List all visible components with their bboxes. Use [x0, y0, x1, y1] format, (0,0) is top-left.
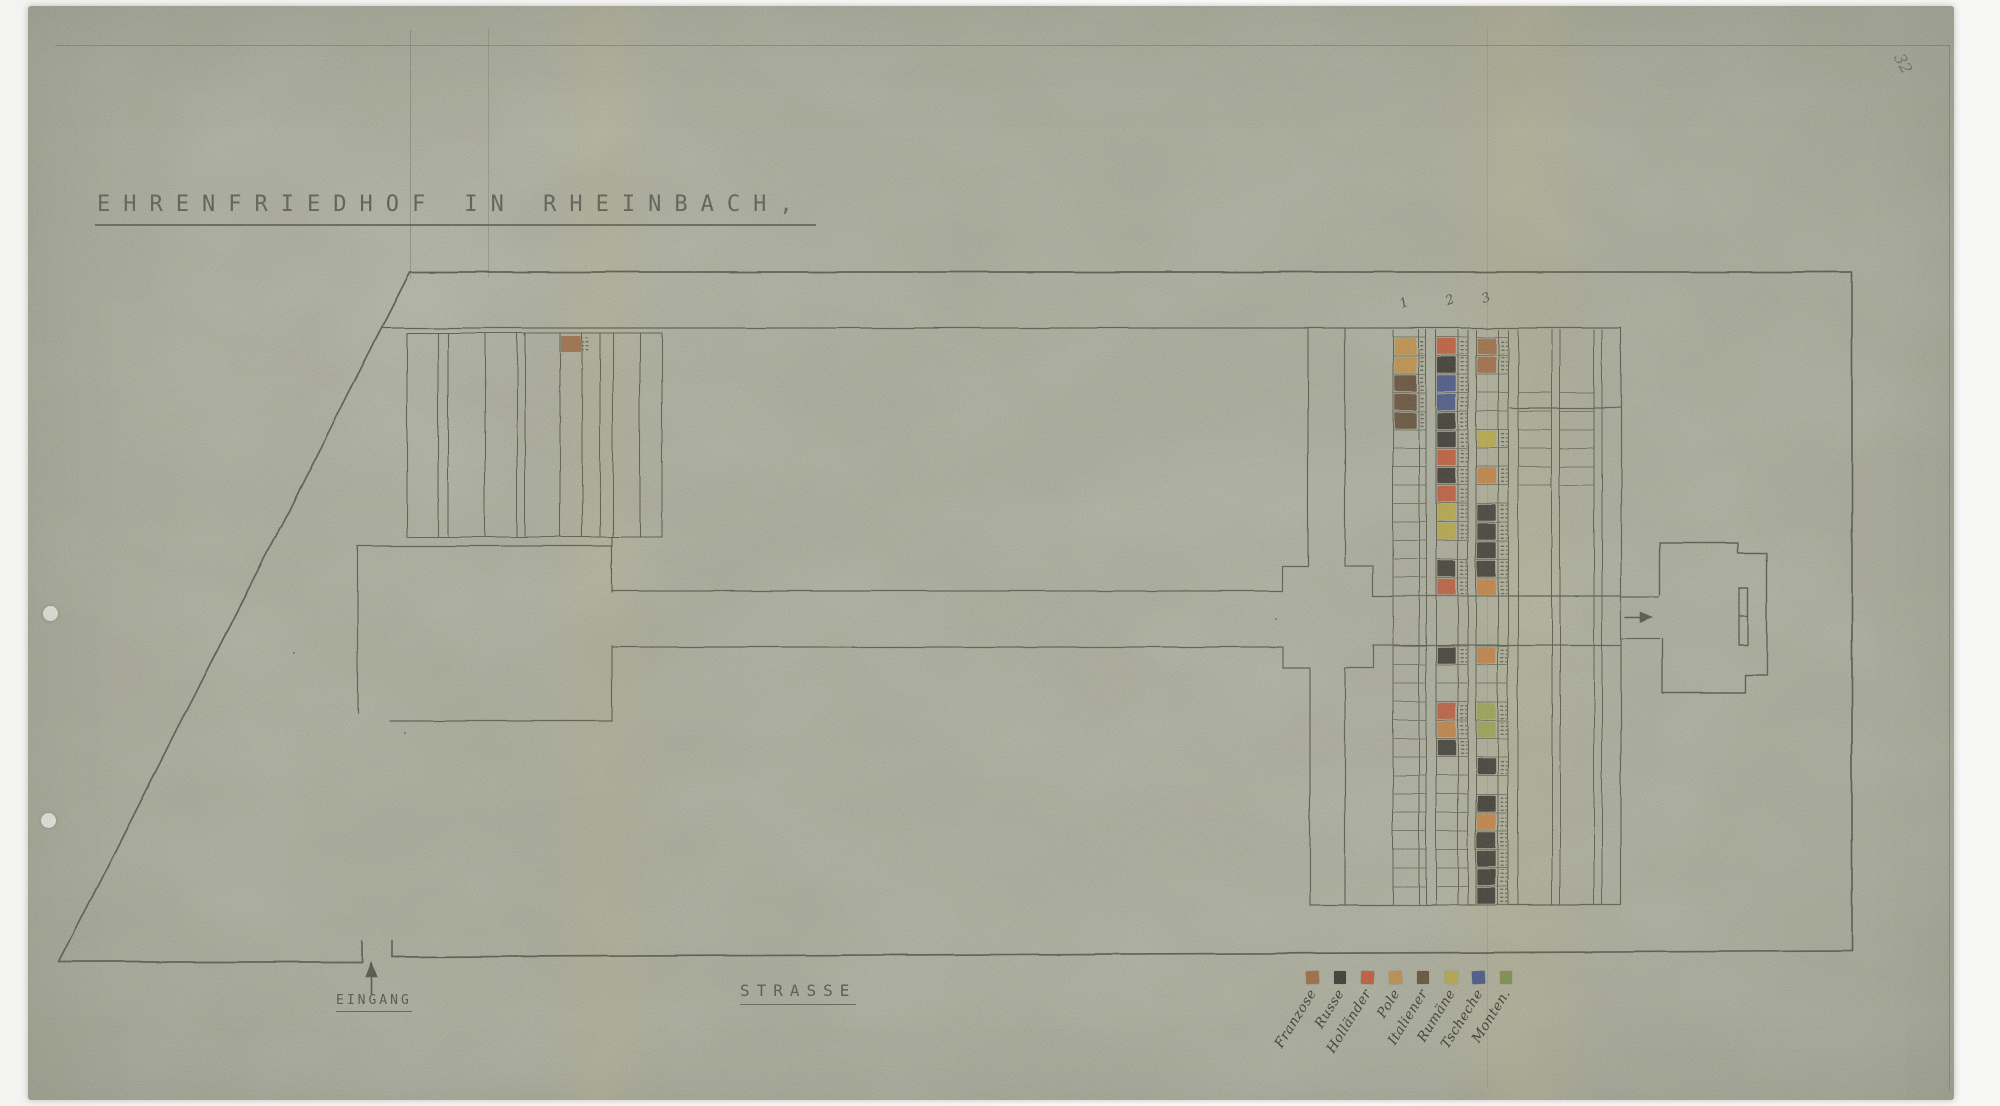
punch-hole: [43, 606, 58, 621]
paper-aging-band: [1433, 6, 1603, 1100]
paper-speck: [293, 652, 295, 654]
drawing-title: EHRENFRIEDHOF IN RHEINBACH,: [95, 192, 816, 226]
legend-swatch-rumaene: [1444, 971, 1457, 984]
paper-sheet: [28, 6, 1954, 1100]
street-label: STRASSE: [740, 981, 856, 1005]
legend-swatch-russe: [1334, 971, 1347, 984]
paper-crease: [1487, 28, 1488, 1088]
paper-speck: [1275, 618, 1277, 620]
scan-background: EHRENFRIEDHOF IN RHEINBACH, EINGANG STRA…: [0, 0, 2000, 1106]
paper-crease: [410, 30, 411, 278]
legend-swatch-hollaender: [1361, 971, 1374, 984]
paper-crease: [488, 28, 489, 278]
legend-swatch-franzose: [1306, 971, 1319, 984]
sheet-border-right: [1949, 45, 1950, 1091]
entrance-label: EINGANG: [336, 993, 412, 1012]
paper-aging-band: [545, 6, 665, 1100]
legend-swatch-pole: [1389, 971, 1402, 984]
legend-swatch-italiener: [1417, 971, 1430, 984]
legend-swatch-tscheche: [1472, 971, 1485, 984]
paper-speck: [404, 732, 406, 734]
punch-hole: [41, 813, 56, 828]
sheet-border-top: [55, 45, 1950, 46]
legend-swatch-montenegriner: [1500, 971, 1513, 984]
